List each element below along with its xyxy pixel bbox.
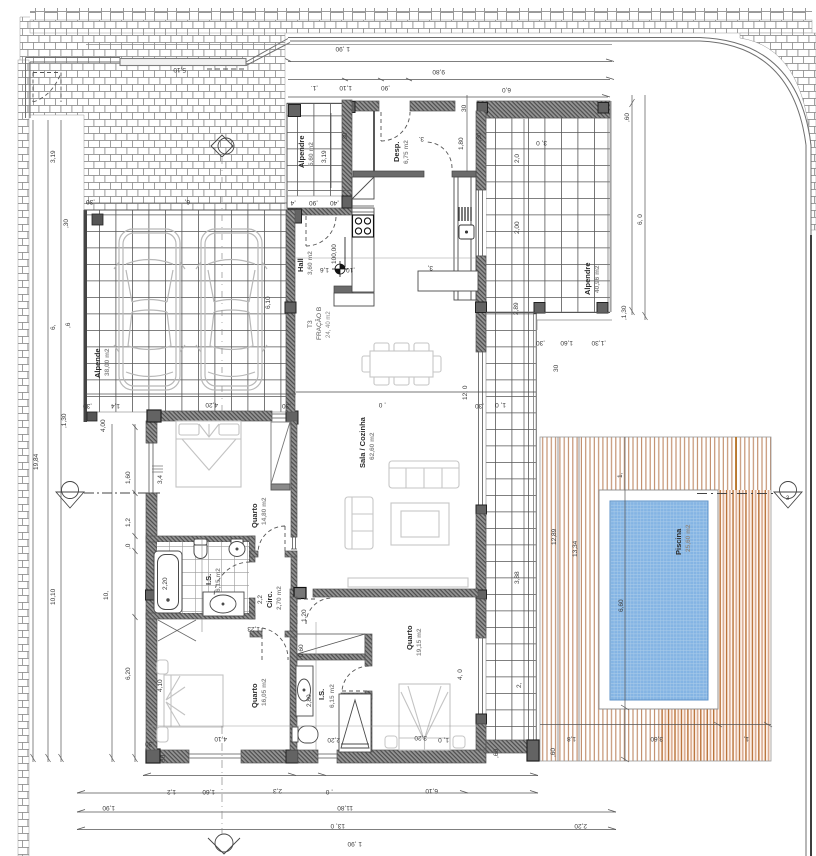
svg-text:6,15 m2: 6,15 m2 (215, 568, 222, 592)
svg-text:,90: ,90 (381, 84, 390, 91)
svg-text:5,10: 5,10 (173, 66, 186, 73)
svg-text:2,70 m2: 2,70 m2 (276, 586, 283, 610)
svg-text:2,3: 2,3 (273, 787, 282, 794)
svg-text:3,88: 3,88 (514, 571, 521, 584)
svg-text:6,10: 6,10 (265, 296, 272, 309)
svg-text:1 ,90: 1 ,90 (335, 45, 350, 52)
svg-text:, 0: , 0 (325, 788, 333, 795)
svg-text:,30: ,30 (145, 740, 154, 747)
svg-text:1,80: 1,80 (458, 137, 465, 150)
svg-text:,1.: ,1. (311, 84, 318, 91)
svg-text:40,96 m2: 40,96 m2 (594, 265, 601, 293)
svg-text:,30: ,30 (63, 219, 70, 228)
svg-text:,1,30: ,1,30 (61, 413, 68, 428)
svg-text:38,00 m2: 38,00 m2 (104, 348, 111, 376)
svg-text:6,60: 6,60 (618, 599, 625, 612)
svg-text:11,80: 11,80 (337, 804, 353, 811)
svg-text:,30: ,30 (477, 132, 483, 141)
svg-text:62,60 m2: 62,60 m2 (369, 432, 376, 460)
svg-text:4,20: 4,20 (205, 401, 218, 408)
svg-text:,30: ,30 (536, 339, 545, 346)
svg-text:13, 0: 13, 0 (330, 822, 345, 829)
svg-text:30: 30 (553, 364, 560, 372)
svg-text:19,84: 19,84 (33, 453, 40, 470)
svg-text:1,10: 1,10 (339, 84, 352, 91)
svg-text:16,05 m2: 16,05 m2 (261, 678, 268, 706)
svg-text:30: 30 (160, 754, 167, 762)
svg-text:Circ.: Circ. (265, 591, 274, 608)
svg-text:,4: ,4 (290, 199, 296, 206)
svg-text:6,: 6, (50, 324, 57, 330)
svg-text:1,: 1, (617, 472, 624, 478)
svg-text:1,60: 1,60 (560, 339, 573, 346)
svg-text:1,90: 1,90 (102, 804, 115, 811)
svg-text:4,10: 4,10 (214, 735, 227, 742)
svg-text:1,60: 1,60 (125, 471, 132, 484)
svg-text:2,: 2, (516, 682, 523, 688)
svg-text:1,8: 1,8 (567, 735, 576, 742)
svg-text:,90: ,90 (309, 199, 318, 206)
svg-text:6, 0: 6, 0 (637, 214, 644, 225)
svg-text:4,00: 4,00 (100, 419, 107, 432)
svg-text:1,2: 1,2 (125, 518, 132, 527)
svg-text:,60: ,60 (493, 749, 500, 758)
svg-text:25,60 m2: 25,60 m2 (685, 524, 692, 552)
svg-text:3,20: 3,20 (414, 734, 427, 741)
svg-text:1, 0: 1, 0 (438, 736, 449, 743)
svg-text:2,20: 2,20 (574, 822, 587, 829)
svg-text:1,4: 1,4 (111, 402, 120, 409)
svg-text:Alpende: Alpende (93, 348, 102, 378)
svg-text:Sala / Cozinha: Sala / Cozinha (358, 416, 367, 468)
svg-text:6,75 m2: 6,75 m2 (403, 140, 410, 164)
svg-text:6,: 6, (184, 198, 190, 205)
svg-text:2,20: 2,20 (162, 577, 169, 590)
svg-text:2,80: 2,80 (306, 694, 313, 707)
svg-text:3.: 3. (418, 135, 424, 142)
svg-text:,1,30: ,1,30 (591, 339, 606, 346)
svg-text:1,23: 1,23 (247, 625, 260, 632)
svg-text:2,2: 2,2 (257, 595, 264, 604)
svg-text:,40: ,40 (330, 199, 339, 206)
svg-text:1,: 1, (743, 735, 749, 742)
svg-text:1, 0: 1, 0 (495, 401, 506, 408)
svg-text:4, 0: 4, 0 (457, 669, 464, 680)
svg-text:Hall: Hall (296, 258, 305, 272)
svg-text:Piscina: Piscina (674, 528, 683, 555)
svg-text:,1,30: ,1,30 (621, 305, 628, 320)
svg-text:,30: ,30 (282, 402, 291, 409)
svg-text:Desp.: Desp. (392, 142, 401, 162)
svg-text:,60: ,60 (550, 748, 557, 757)
svg-text:24, 40 m2: 24, 40 m2 (326, 311, 332, 338)
svg-text:10,10: 10,10 (50, 588, 57, 605)
svg-text:0,60: 0,60 (298, 644, 305, 657)
svg-text:3,4: 3,4 (157, 475, 164, 484)
svg-text:,30: ,30 (475, 402, 484, 409)
svg-text:,0: ,0 (125, 543, 132, 549)
svg-text:,30: ,30 (343, 132, 349, 141)
svg-text:1,2: 1,2 (167, 788, 176, 795)
svg-text:6,15 m2: 6,15 m2 (329, 684, 336, 708)
svg-text:, 0: , 0 (378, 401, 386, 408)
svg-text:6,20: 6,20 (125, 667, 132, 680)
svg-text:14,80 m2: 14,80 m2 (261, 497, 268, 525)
svg-text:Quarto: Quarto (250, 683, 259, 708)
svg-text:I.S.: I.S. (317, 689, 326, 700)
svg-text:5,60 m2: 5,60 m2 (308, 142, 315, 166)
svg-text:6,0: 6,0 (502, 86, 511, 93)
svg-text:T3: T3 (307, 320, 314, 328)
svg-text:,30: ,30 (86, 198, 95, 205)
svg-text:FRAÇÃO B: FRAÇÃO B (314, 307, 323, 340)
svg-text:1 ,90: 1 ,90 (347, 840, 362, 847)
svg-text:30: 30 (461, 104, 468, 112)
svg-text:,60: ,60 (624, 113, 631, 122)
svg-text:2,00: 2,00 (514, 221, 521, 234)
svg-text:2,0: 2,0 (514, 154, 521, 163)
svg-text:I.S.: I.S. (204, 574, 213, 585)
svg-text:6,10: 6,10 (425, 787, 438, 794)
svg-text:Quarto: Quarto (250, 503, 259, 528)
svg-text:2,20: 2,20 (327, 736, 340, 743)
svg-text:3, 0: 3, 0 (536, 139, 547, 146)
svg-text:,30: ,30 (83, 402, 92, 409)
svg-text:,6: ,6 (65, 322, 72, 328)
svg-text:Alpendre: Alpendre (583, 262, 592, 295)
svg-text:3,19: 3,19 (50, 150, 57, 163)
svg-text:3,60: 3,60 (650, 735, 663, 742)
svg-text:3,60 m2: 3,60 m2 (307, 251, 314, 275)
svg-text:Quarto: Quarto (405, 625, 414, 650)
svg-text:13,34: 13,34 (572, 540, 579, 557)
svg-text:1,60: 1,60 (202, 788, 215, 795)
svg-text:100,00: 100,00 (331, 244, 338, 264)
svg-text:4,10: 4,10 (157, 679, 164, 692)
svg-text:9,80: 9,80 (432, 68, 445, 75)
svg-text:,10: ,10 (346, 266, 355, 273)
svg-text:Alpendre: Alpendre (297, 135, 306, 168)
svg-text:12, 0: 12, 0 (462, 385, 469, 400)
svg-text:10,: 10, (103, 591, 110, 600)
svg-text:2,89: 2,89 (513, 302, 520, 315)
svg-text:3,: 3, (427, 264, 433, 271)
svg-text:19,15 m2: 19,15 m2 (416, 628, 423, 656)
svg-text:1,6: 1,6 (320, 266, 329, 273)
svg-text:1,20: 1,20 (301, 609, 308, 622)
svg-text:12,89: 12,89 (551, 528, 558, 545)
svg-text:3,19: 3,19 (321, 150, 328, 163)
